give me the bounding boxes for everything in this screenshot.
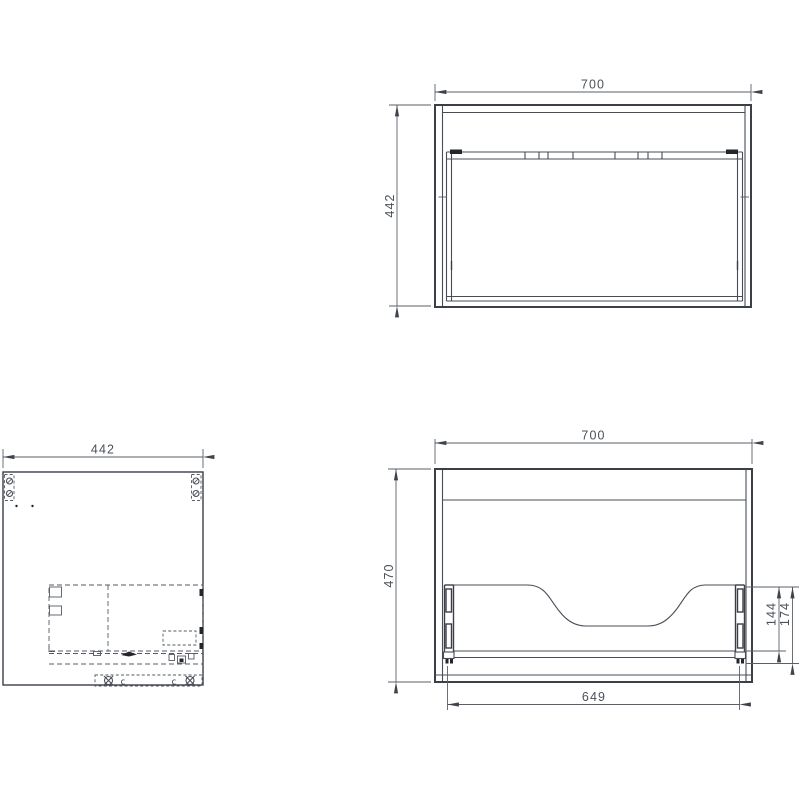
plan-view: 700 442 <box>383 78 751 308</box>
side-view: c c 442 <box>3 443 203 688</box>
front-drawer-width-label: 649 <box>582 690 606 704</box>
drawer-back-panel-cutout <box>454 585 736 626</box>
front-height-label: 470 <box>382 563 396 587</box>
runner-bracket <box>50 606 62 615</box>
plan-drawer-joinery-ticks <box>525 152 662 159</box>
slide-member <box>738 624 744 648</box>
plan-width-label: 700 <box>581 78 605 92</box>
cam-lock-icon <box>186 676 195 685</box>
front-cutout-dimension: 144 174 <box>746 587 799 664</box>
side-drawer-runner-hidden <box>49 585 203 664</box>
runner-bracket <box>50 587 62 597</box>
plan-drawer-box <box>439 150 750 302</box>
front-width-dimension: 700 <box>435 429 752 465</box>
dowel-hole-dot <box>31 505 33 507</box>
plan-width-dimension: 700 <box>435 78 751 102</box>
side-right-hanging-bracket <box>192 475 202 501</box>
front-back-panel-height-label: 174 <box>778 602 792 626</box>
plan-depth-dimension: 442 <box>383 105 431 306</box>
technical-drawing-page: 700 442 <box>0 0 800 800</box>
dowel-hole-dot <box>15 505 17 507</box>
front-right-drawer-slide <box>735 585 746 664</box>
slide-member <box>446 589 452 612</box>
plan-left-bracket-icon <box>450 150 462 155</box>
front-cabinet-outline <box>435 469 752 682</box>
side-depth-dimension: 442 <box>3 443 203 469</box>
front-width-label: 700 <box>581 429 605 443</box>
runner-letter-left: c <box>121 678 126 688</box>
side-depth-label: 442 <box>91 443 115 457</box>
runner-adjuster-box <box>163 631 196 645</box>
front-height-dimension: 470 <box>382 469 431 682</box>
side-left-hanging-bracket <box>5 475 15 501</box>
drawing-canvas: 700 442 <box>0 0 800 800</box>
runner-clip-mark <box>121 652 137 657</box>
runner-latch-cluster <box>169 654 194 664</box>
plan-cabinet-outline <box>435 105 751 307</box>
slide-foot <box>735 652 746 659</box>
front-drawer-width-dimension: 649 <box>448 666 740 710</box>
front-cutout-height-label: 144 <box>765 602 779 626</box>
front-left-drawer-slide <box>444 585 455 664</box>
runner-letter-right: c <box>172 678 177 688</box>
slide-member <box>738 589 744 612</box>
slide-member <box>446 624 452 648</box>
cam-lock-icon <box>104 676 113 685</box>
plan-right-bracket-icon <box>726 150 738 155</box>
front-view: 700 470 144 174 649 <box>382 429 799 711</box>
slide-foot <box>444 652 455 659</box>
plan-depth-label: 442 <box>383 193 397 217</box>
